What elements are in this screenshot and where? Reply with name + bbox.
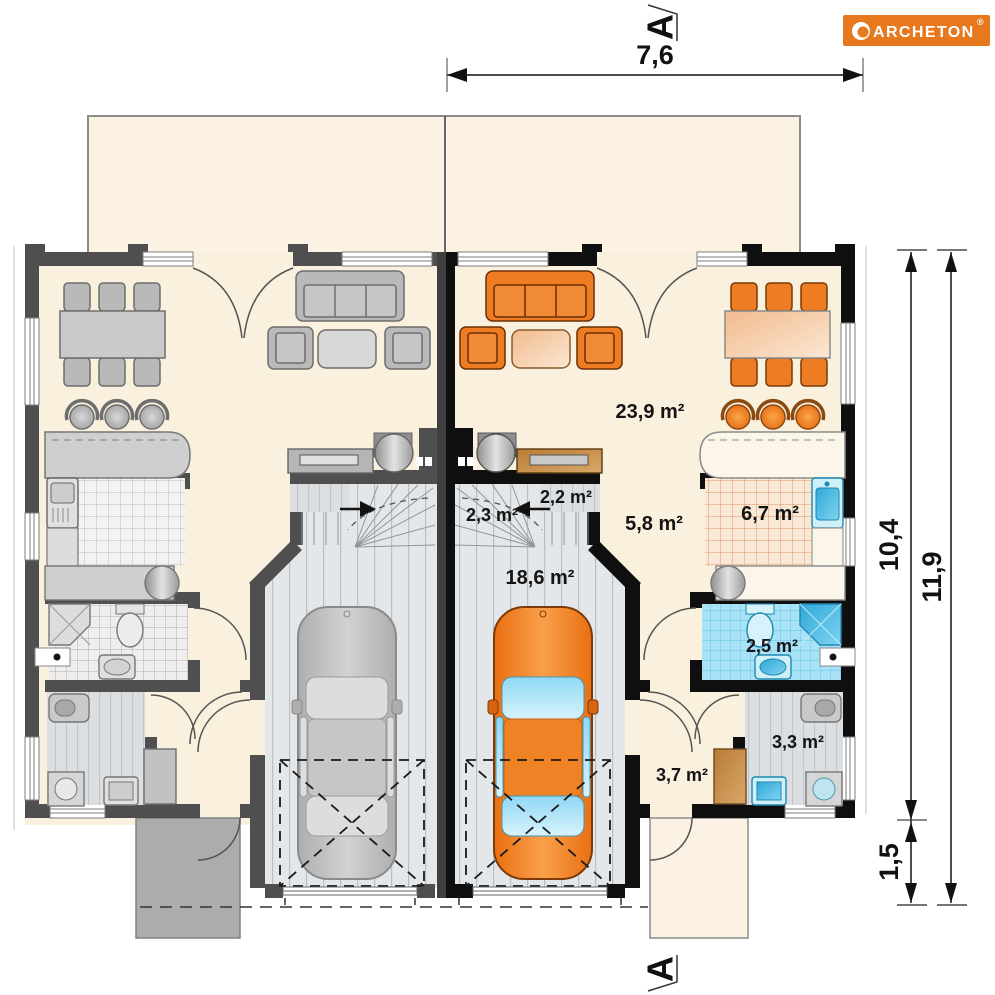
room-label-staircase: 2,3 m²	[466, 505, 518, 525]
section-marker-top: A	[640, 5, 681, 41]
dimension-right: 10,4 1,5 11,9	[874, 250, 967, 905]
dimension-right-inner-label: 10,4	[874, 519, 904, 572]
floor-plan-page: 23,9 m² 2,3 m² 2,2 m² 5,8 m² 18,6 m² 6,7…	[0, 0, 995, 995]
right-garage-door-gap	[625, 700, 640, 755]
room-label-closet: 2,2 m²	[540, 487, 592, 507]
archeton-sun-icon	[852, 22, 870, 40]
left-dining-set	[60, 283, 165, 386]
room-label-kitchen: 6,7 m²	[741, 503, 799, 525]
left-kitchen-counter	[45, 432, 190, 478]
section-marker-bottom-letter: A	[640, 956, 681, 982]
left-kitchen-cylinder	[145, 566, 179, 600]
section-marker-top-letter: A	[640, 14, 681, 40]
window-east-1	[841, 323, 855, 404]
left-utility-room	[47, 692, 145, 806]
right-porch	[650, 818, 748, 938]
dimension-right-outer-label: 11,9	[917, 551, 947, 602]
left-kitchen-tile-floor	[75, 478, 185, 566]
right-kitchen-counter	[700, 432, 845, 478]
room-label-bathroom: 2,5 m²	[746, 636, 798, 656]
dimension-top: 7,6	[447, 40, 863, 92]
left-porch	[136, 818, 240, 938]
left-car	[292, 607, 402, 879]
right-vestibule-wardrobe	[714, 749, 746, 804]
dimension-right-lower-label: 1,5	[874, 843, 904, 881]
logo-text: ARCHETON	[873, 24, 975, 41]
room-label-hall: 5,8 m²	[625, 513, 683, 535]
right-fireplace	[477, 434, 515, 472]
right-bathroom-vent	[820, 648, 855, 666]
left-garage-door-gap	[250, 700, 265, 755]
right-dining-set	[725, 283, 830, 386]
left-toilet	[117, 613, 143, 647]
room-label-vestibule: 3,7 m²	[656, 765, 708, 785]
logo-registered-mark: ®	[977, 17, 984, 27]
room-label-living: 23,9 m²	[616, 401, 685, 423]
left-bathroom	[35, 604, 188, 680]
right-car	[488, 607, 598, 879]
window-east-3	[841, 737, 855, 800]
right-bar-stools	[723, 401, 824, 429]
section-marker-bottom: A	[640, 955, 681, 991]
window-top-right-2	[697, 252, 747, 266]
left-vestibule-wardrobe	[144, 749, 176, 804]
floor-plan-drawing: 23,9 m² 2,3 m² 2,2 m² 5,8 m² 18,6 m² 6,7…	[0, 0, 995, 995]
room-label-utility: 3,3 m²	[772, 732, 824, 752]
window-west-3	[25, 737, 39, 800]
party-wall	[437, 252, 455, 898]
left-bathroom-vent	[35, 648, 70, 666]
window-top-right-1	[458, 252, 548, 266]
window-west-2	[25, 513, 39, 560]
window-top-left-2	[342, 252, 432, 266]
left-fireplace	[375, 434, 413, 472]
room-label-garage: 18,6 m²	[506, 567, 575, 589]
right-kitchen-cylinder	[711, 566, 745, 600]
window-west-1	[25, 318, 39, 405]
terrace	[88, 116, 800, 254]
dimension-top-label: 7,6	[636, 40, 674, 70]
window-top-left-1	[143, 252, 193, 266]
left-bar-stools	[67, 401, 168, 429]
archeton-logo: ARCHETON ®	[843, 15, 990, 46]
